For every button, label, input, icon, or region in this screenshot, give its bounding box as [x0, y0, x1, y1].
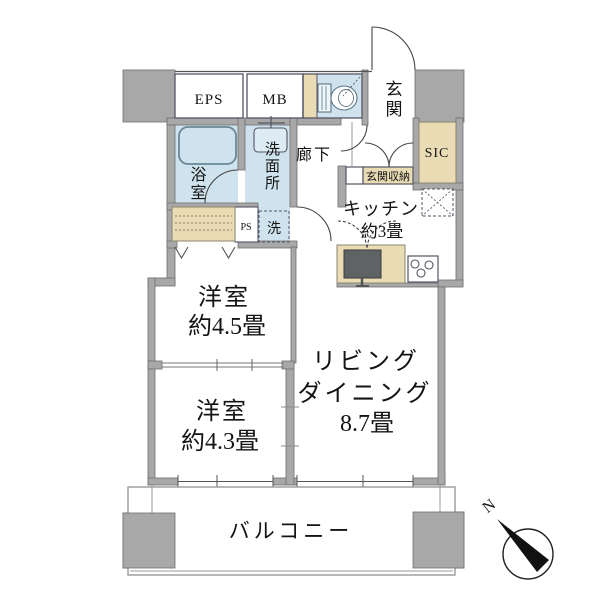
- entrance-door-arc: [372, 27, 415, 70]
- pillar-top-left: [123, 70, 175, 122]
- wall-bath-washroom: [238, 118, 245, 170]
- bathtub-icon: [179, 127, 236, 164]
- wall-genkan-left: [362, 70, 368, 125]
- toilet-strip: [303, 74, 317, 118]
- fridge-space-icon: [422, 189, 453, 216]
- wall-left-upper: [167, 118, 175, 285]
- genkan-bench-box: [346, 167, 363, 184]
- storage-door-arc-right: [389, 143, 413, 167]
- wall-bottom-1: [148, 478, 178, 485]
- wall-genkan-sic: [413, 118, 419, 183]
- wall-right-jog: [438, 280, 463, 287]
- wall-under-eps-row: [167, 118, 341, 125]
- label-balcony: バルコニー: [229, 519, 354, 543]
- toilet-door-arc: [341, 125, 367, 151]
- storage-door-arc-left: [365, 143, 389, 167]
- label-genkan: 玄関: [383, 80, 402, 120]
- kitchen-sink-icon: [344, 250, 381, 278]
- closet-folding-door-2: [222, 247, 235, 258]
- wall-right-lower: [438, 287, 445, 485]
- label-bedroom2: 洋室: [196, 398, 248, 425]
- label-living-size: 8.7畳: [340, 411, 394, 437]
- label-ps: PS: [240, 222, 251, 233]
- wall-bedrooms-right-nub: [282, 361, 294, 369]
- compass: N: [479, 496, 553, 579]
- label-bedroom1: 洋室: [198, 284, 250, 311]
- wall-left-lower: [148, 278, 155, 485]
- label-living-1: リビング: [312, 348, 420, 375]
- label-washroom: 洗面所: [263, 141, 280, 192]
- wall-right-upper: [456, 118, 463, 285]
- pillar-top-right: [415, 70, 464, 122]
- label-bath: 浴室: [188, 166, 207, 202]
- wall-bedrooms-left-nub: [148, 361, 162, 369]
- closet-folding-door-1: [175, 247, 188, 258]
- label-laundry: 洗: [267, 221, 281, 237]
- partition-bedrooms: [162, 363, 284, 367]
- closet-box: [172, 207, 235, 241]
- label-mb: MB: [262, 92, 287, 108]
- label-eps: EPS: [195, 92, 224, 108]
- wall-bedroom2-living: [286, 363, 294, 485]
- wall-bedroom1-living: [291, 247, 296, 363]
- floor-plan-page: N EPS MB 玄関 SIC 玄関収納 廊下 浴室 洗面所 洗 PS キッチン…: [0, 0, 600, 600]
- label-living-2: ダイニング: [298, 380, 433, 407]
- label-kitchen: キッチン: [343, 199, 419, 219]
- label-sic: SIC: [425, 146, 450, 161]
- label-bedroom2-size: 約4.3畳: [181, 428, 259, 455]
- label-bedroom1-size: 約4.5畳: [188, 313, 266, 340]
- label-genkan-storage: 玄関収納: [366, 169, 410, 183]
- compass-north-label: N: [479, 496, 499, 517]
- floor-plan: N EPS MB 玄関 SIC 玄関収納 廊下 浴室 洗面所 洗 PS キッチン…: [0, 0, 600, 600]
- label-kitchen-size: 約3畳: [361, 222, 404, 241]
- washroom-door-arc: [297, 207, 331, 241]
- wall-counter-front: [337, 283, 438, 287]
- label-hallway: 廊下: [296, 146, 332, 164]
- toilet-tank-icon: [318, 84, 331, 112]
